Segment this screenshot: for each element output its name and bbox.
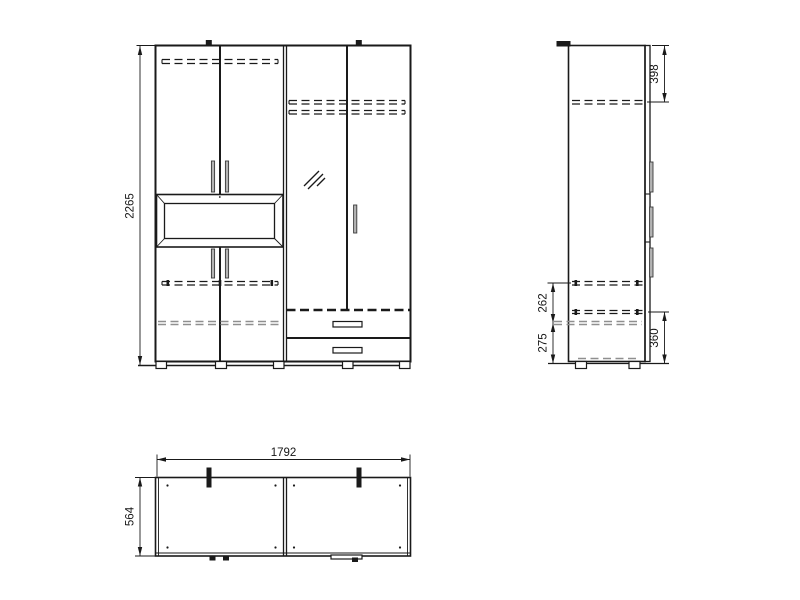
shelf-pin — [271, 280, 274, 286]
foot — [343, 362, 354, 369]
door-handle — [211, 249, 214, 278]
open-niche — [157, 195, 284, 248]
door-handle — [354, 205, 357, 233]
drawer-handle — [333, 322, 362, 328]
arrow-up-icon — [662, 46, 666, 55]
shelf-pin — [575, 280, 578, 286]
arrow-down-icon — [551, 355, 555, 364]
dim-drawer-section: 360 — [648, 312, 669, 364]
arrow-right-icon — [401, 457, 410, 461]
dim-label-drawer-section: 360 — [649, 328, 661, 347]
arrow-up-icon — [138, 478, 142, 487]
dim-label-width: 1792 — [271, 447, 297, 459]
dim-shelf-gap: 262 — [538, 283, 572, 323]
wall-bracket-icon — [357, 468, 362, 488]
wall-bracket-icon — [356, 40, 362, 46]
arrow-up-icon — [662, 312, 666, 321]
dim-label-top-shelf: 398 — [649, 64, 661, 83]
wall-bracket-icon — [557, 41, 571, 47]
arrow-down-icon — [138, 547, 142, 556]
dim-total-width: 1792 — [157, 447, 410, 477]
shelf-pin — [219, 280, 222, 286]
left-upper-doors — [162, 46, 278, 195]
door-handle — [211, 161, 214, 192]
side-handles — [650, 162, 653, 277]
foot — [274, 362, 285, 369]
foot — [576, 362, 587, 369]
dim-total-depth: 564 — [125, 478, 157, 557]
foot — [156, 362, 167, 369]
door-handle — [650, 207, 653, 237]
arrow-up-icon — [551, 283, 555, 292]
door-handle — [225, 161, 228, 192]
door-handle — [225, 249, 228, 278]
dim-label-height: 2265 — [125, 193, 137, 219]
dim-label-bottom-section: 275 — [538, 333, 550, 352]
side-hidden-shelves — [554, 101, 643, 359]
plan-view: 1792 564 — [125, 447, 411, 562]
arrow-down-icon — [138, 356, 142, 365]
left-lower-doors — [158, 247, 282, 362]
hinge-tab — [210, 556, 216, 561]
foot — [629, 362, 640, 369]
door-handle — [650, 162, 653, 192]
wardrobe-drawing: 2265 — [0, 0, 800, 600]
door-handle — [650, 248, 653, 277]
technical-drawing-canvas: 2265 — [0, 0, 800, 600]
dim-label-depth: 564 — [125, 506, 137, 526]
foot — [216, 362, 227, 369]
front-view: 2265 — [125, 40, 411, 369]
drawer-handle — [333, 348, 362, 354]
wall-bracket-icon — [206, 40, 212, 46]
arrow-down-icon — [662, 93, 666, 102]
arrow-up-icon — [138, 46, 142, 55]
hinge-tab — [223, 556, 229, 561]
shelf-pin — [575, 309, 578, 315]
shelf-pin — [636, 280, 639, 286]
right-doors — [289, 46, 405, 311]
dim-label-shelf-gap: 262 — [538, 293, 550, 312]
drawer-section — [287, 310, 411, 353]
wall-bracket-icon — [207, 468, 212, 488]
foot — [400, 362, 411, 369]
plan-panel — [156, 478, 411, 557]
mirror-glass-icon — [304, 171, 325, 189]
side-view: 398 262 275 360 — [538, 41, 670, 369]
dim-total-height: 2265 — [125, 46, 158, 366]
dim-bottom-section: 275 — [538, 323, 556, 364]
arrow-left-icon — [157, 457, 166, 461]
niche-inner-frame — [165, 204, 275, 239]
shelf-pin — [636, 309, 639, 315]
shelf-pin — [167, 280, 170, 286]
hinge-tab — [352, 558, 358, 563]
side-feet — [576, 362, 641, 369]
arrow-down-icon — [662, 355, 666, 364]
hidden-shelf-mid — [162, 280, 278, 286]
